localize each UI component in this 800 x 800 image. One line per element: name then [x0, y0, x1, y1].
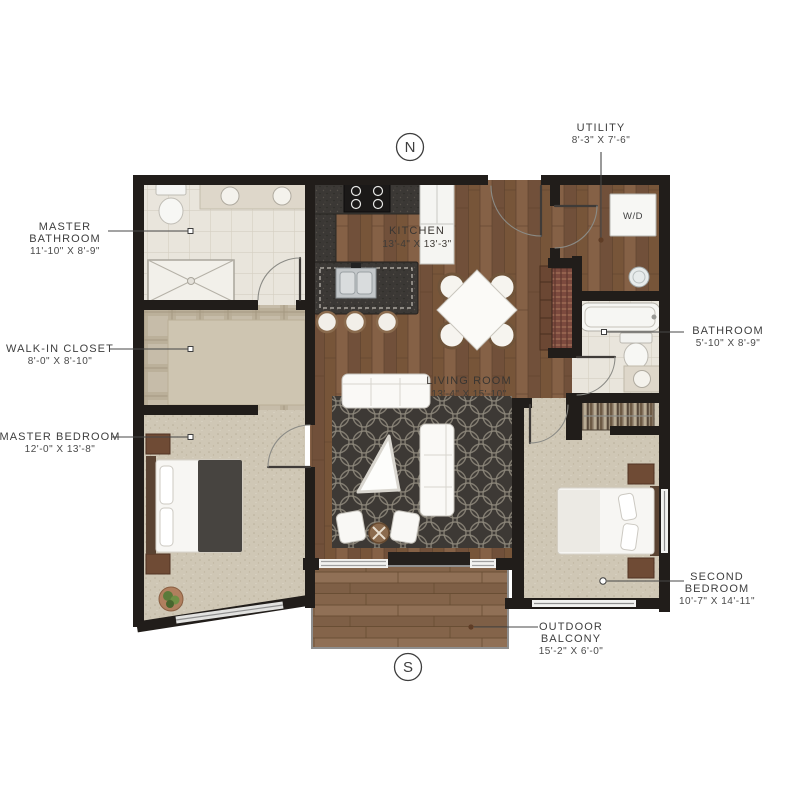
marker-dot — [598, 237, 603, 242]
label-master-bedroom: MASTER BEDROOM 12'-0" X 13'-8" — [0, 431, 121, 455]
sliding-glass-door — [470, 559, 496, 568]
wall-interior — [305, 467, 315, 608]
window-second-bedroom-east — [661, 489, 668, 553]
wall-stub — [303, 558, 319, 570]
bed-headboard — [146, 456, 156, 554]
double-vanity — [200, 184, 308, 209]
toilet-tank — [156, 184, 186, 195]
nightstand — [628, 558, 654, 578]
sliding-glass-door — [319, 559, 388, 568]
wall-interior — [550, 180, 560, 206]
window-second-bedroom-south — [532, 600, 636, 607]
bed-duvet — [198, 460, 242, 552]
marker-square — [602, 330, 607, 335]
label-walk-in-closet: WALK-IN CLOSET 8'-0" X 8'-10" — [6, 343, 114, 367]
wall-interior — [572, 291, 670, 301]
svg-text:13'-4" X 13'-3": 13'-4" X 13'-3" — [382, 239, 451, 250]
utility-sink — [629, 267, 649, 287]
bedroom-closet — [582, 402, 654, 430]
svg-text:BATHROOM: BATHROOM — [692, 325, 764, 337]
svg-text:UTILITY: UTILITY — [577, 122, 626, 134]
svg-text:12'-0" X 13'-8": 12'-0" X 13'-8" — [25, 444, 96, 455]
compass-south-letter: S — [403, 659, 413, 676]
svg-text:BATHROOM: BATHROOM — [29, 233, 101, 245]
floorplan-page: W/D — [0, 0, 800, 800]
label-second-bedroom: SECOND BEDROOM 10'-7" X 14'-11" — [679, 571, 755, 607]
marker-square — [188, 435, 193, 440]
bed-blanket — [558, 490, 600, 552]
closet-rug — [168, 320, 305, 405]
vanity-sink — [634, 371, 651, 388]
svg-text:KITCHEN: KITCHEN — [389, 225, 445, 237]
shower — [148, 260, 234, 302]
wall-stub — [496, 558, 514, 570]
marker-square — [188, 347, 193, 352]
label-outdoor-balcony: OUTDOOR BALCONY 15'-2" X 6'-0" — [539, 621, 604, 657]
toilet-tank — [620, 333, 652, 343]
stove — [344, 182, 390, 212]
label-master-bathroom: MASTER BATHROOM 11'-10" X 8'-9" — [29, 221, 101, 257]
lounge-chair — [390, 510, 421, 544]
svg-text:OUTDOOR: OUTDOOR — [539, 621, 603, 633]
toilet-bowl — [624, 343, 648, 369]
pillow — [160, 508, 173, 546]
wall-interior — [512, 398, 524, 609]
label-utility: UTILITY 8'-3" X 7'-6" — [572, 122, 631, 146]
pillow — [160, 466, 173, 504]
svg-text:WALK-IN CLOSET: WALK-IN CLOSET — [6, 343, 114, 355]
bar-stool — [317, 312, 337, 332]
lounge-chair — [336, 510, 367, 544]
floorplan-canvas: W/D — [0, 0, 800, 800]
svg-text:13'-4" X 15'-10": 13'-4" X 15'-10" — [431, 389, 506, 400]
island-sink — [336, 263, 376, 298]
bathtub — [580, 303, 660, 331]
svg-text:MASTER BEDROOM: MASTER BEDROOM — [0, 431, 121, 443]
svg-text:8'-0" X 8'-10": 8'-0" X 8'-10" — [28, 356, 93, 367]
bar-stool — [377, 312, 397, 332]
compass-south: S — [395, 654, 422, 681]
media-console — [388, 552, 470, 565]
wall-interior — [140, 300, 258, 310]
wall-interior — [296, 300, 310, 310]
label-bathroom: BATHROOM 5'-10" X 8'-9" — [692, 325, 764, 349]
compass-north: N — [397, 134, 424, 161]
fridge — [420, 182, 454, 264]
svg-text:BEDROOM: BEDROOM — [685, 583, 750, 595]
wall-interior — [566, 398, 582, 440]
marker-dot — [468, 624, 473, 629]
marker-square — [188, 229, 193, 234]
wall-interior — [572, 256, 582, 357]
washer-dryer-label: W/D — [623, 211, 643, 222]
marker-circle — [600, 578, 606, 584]
compass-north-letter: N — [405, 139, 416, 156]
svg-text:LIVING ROOM: LIVING ROOM — [426, 375, 511, 387]
vanity-sink — [221, 187, 239, 205]
vanity-sink — [273, 187, 291, 205]
svg-text:5'-10" X 8'-9": 5'-10" X 8'-9" — [696, 338, 761, 349]
wall-left — [133, 175, 144, 627]
nightstand — [628, 464, 654, 484]
side-table — [369, 523, 389, 543]
toilet-bowl — [159, 198, 183, 224]
svg-text:SECOND: SECOND — [690, 571, 744, 583]
potted-plant — [159, 587, 183, 611]
wall-top-right — [541, 175, 670, 185]
kitchen-island — [314, 262, 418, 314]
svg-text:15'-2" X 6'-0": 15'-2" X 6'-0" — [539, 646, 604, 657]
svg-text:11'-10" X 8'-9": 11'-10" X 8'-9" — [30, 246, 100, 257]
svg-text:BALCONY: BALCONY — [541, 633, 601, 645]
nightstand — [146, 554, 170, 574]
svg-text:MASTER: MASTER — [39, 221, 91, 233]
loveseat — [420, 424, 454, 516]
wall-interior — [610, 426, 660, 435]
sofa — [342, 374, 430, 408]
svg-text:8'-3" X 7'-6": 8'-3" X 7'-6" — [572, 135, 631, 146]
balcony-deck — [312, 566, 508, 648]
bar-stool — [345, 312, 365, 332]
dining-set — [437, 270, 517, 350]
wall-interior — [140, 405, 258, 415]
svg-text:10'-7" X 14'-11": 10'-7" X 14'-11" — [679, 596, 755, 607]
pillow — [620, 523, 638, 551]
